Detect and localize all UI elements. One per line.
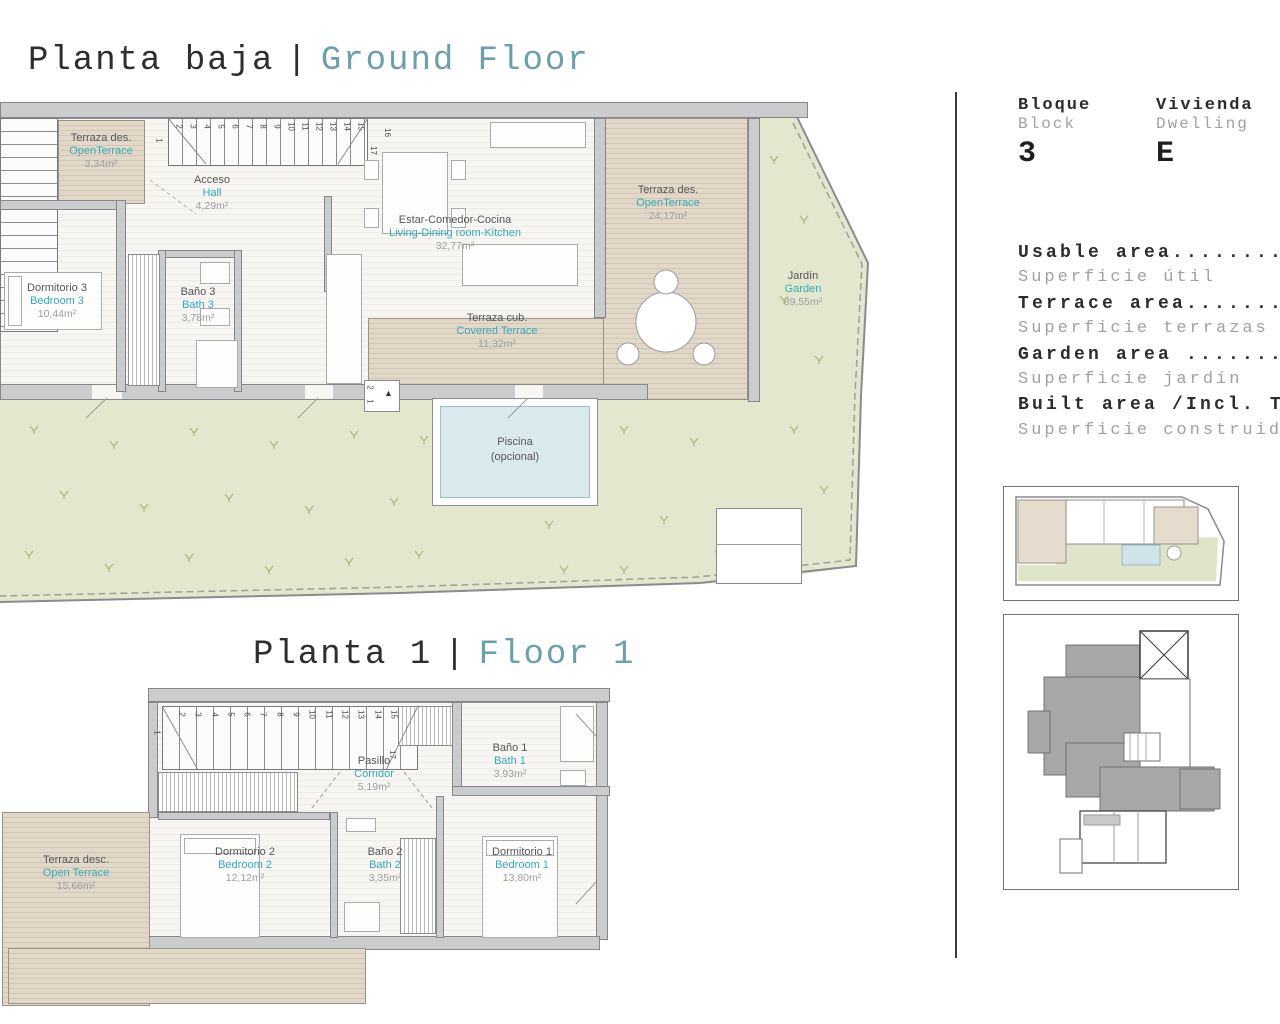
stair-number: 11	[324, 706, 333, 722]
stair-number: 13	[357, 706, 366, 722]
label-en: Covered Terrace	[456, 325, 537, 338]
label-es: Terraza des.	[69, 132, 133, 145]
label-es: Acceso	[194, 174, 230, 187]
label-es: Dormitorio 3	[27, 282, 87, 295]
room-label-bedroom2: Dormitorio 2 Bedroom 2 12,12m²	[215, 846, 275, 885]
toilet-bath1	[560, 770, 586, 786]
block-value: 3	[1018, 137, 1091, 171]
site-plan-mini	[1004, 487, 1236, 598]
wall-bedroom3-top	[0, 200, 126, 210]
label-area: 3,34m²	[69, 158, 133, 171]
stair-number: 8	[275, 706, 284, 722]
label-area: 13,80m²	[492, 872, 552, 885]
label-area: 24,17m²	[636, 210, 700, 223]
room-label-open-terrace: Terraza desc. Open Terrace 15,66m²	[43, 854, 109, 893]
exterior-wall-right	[748, 118, 760, 402]
label-es: Estar-Comedor-Cocina	[389, 214, 521, 227]
shower-bath2	[344, 902, 380, 932]
stair-number: 4	[210, 706, 219, 722]
stair-number: 10	[287, 120, 296, 134]
block-label-en: Block	[1018, 115, 1091, 133]
dwelling-value: E	[1156, 137, 1254, 171]
sink-bath2	[346, 818, 376, 832]
label-en: Open Terrace	[43, 867, 109, 880]
label-en: Bath 3	[181, 299, 216, 312]
area-summary-list: Usable area.................... Superfic…	[1018, 243, 1280, 446]
stair-number: 2	[175, 120, 184, 134]
area-line-usable-es: Superficie útil	[1018, 268, 1280, 293]
label-en: OpenTerrace	[636, 197, 700, 210]
wall-bedroom2-top	[158, 812, 330, 820]
wall-bedroom3-right	[116, 200, 126, 392]
label-en: Bedroom 1	[492, 859, 552, 872]
area-line-terrace-en: Terrace area...................	[1018, 294, 1280, 319]
label-es: Baño 1	[493, 742, 528, 755]
stair-number: 6	[231, 120, 240, 134]
room-label-garden: Jardín Garden 89,55m²	[784, 270, 823, 309]
area-line-usable-en: Usable area....................	[1018, 243, 1280, 268]
area-line-built-es: Superficie construida	[1018, 421, 1280, 446]
wall-bath1-left	[452, 702, 462, 792]
ground-floor-title-en: Ground Floor	[321, 42, 590, 80]
wardrobe	[158, 772, 298, 812]
label-area: 4,29m²	[194, 200, 230, 213]
wall-living-terrace	[594, 118, 606, 318]
label-en: Corridor	[354, 768, 394, 781]
key-plan-thumbnail	[1003, 614, 1239, 890]
label-area: 15,66m²	[43, 880, 109, 893]
dwelling-label-en: Dwelling	[1156, 115, 1254, 133]
stair-number: 7	[259, 706, 268, 722]
stair-number: 3	[194, 706, 203, 722]
label-en: Living-Dining room-Kitchen	[389, 227, 521, 240]
label-area: 12,12m²	[215, 872, 275, 885]
stair-number: 4	[203, 120, 212, 134]
step-number: 1	[366, 399, 375, 403]
area-line-garden-es: Superficie jardín	[1018, 370, 1280, 395]
area-line-built-en: Built area /Incl. Terr	[1018, 395, 1280, 420]
key-plan-mini	[1004, 615, 1236, 887]
label-en: Bedroom 3	[27, 295, 87, 308]
stair-number: 14	[373, 706, 382, 722]
label-en: Garden	[784, 283, 823, 296]
stair-number: 6	[243, 706, 252, 722]
block-info: Bloque Block 3	[1018, 96, 1091, 171]
kitchen-island	[326, 254, 362, 384]
laundry-closet	[398, 706, 456, 746]
pool: Piscina (opcional)	[432, 398, 598, 506]
shower	[196, 340, 238, 388]
room-label-living-room: Estar-Comedor-Cocina Living-Dining room-…	[389, 214, 521, 253]
stair-number: 9	[292, 706, 301, 722]
wall-bath1-bottom	[452, 786, 610, 796]
ground-floor-plan: 23456789101112131415 1 17 16 12345 2 1 ▲…	[0, 96, 876, 612]
label-es: Baño 3	[181, 286, 216, 299]
stair-number: 5	[227, 706, 236, 722]
label-en: OpenTerrace	[69, 145, 133, 158]
shower-bath1	[560, 706, 594, 762]
room-label-corridor: Pasillo Corridor 5,19m²	[354, 755, 394, 794]
label-area: 3,93m²	[493, 768, 528, 781]
label-es: Terraza des.	[636, 184, 700, 197]
step-number: 2	[366, 385, 375, 389]
lower-terrace	[8, 948, 366, 1004]
ground-floor-title: Planta baja|Ground Floor	[28, 42, 590, 80]
label-area: 32,77m²	[389, 240, 521, 253]
floor1-plan: 23456789101112131415 1 16 17 Terraza des…	[0, 686, 620, 1024]
room-label-small-terrace: Terraza des. OpenTerrace 3,34m²	[69, 132, 133, 171]
stair-number: 9	[273, 120, 282, 134]
garden-gate	[716, 508, 802, 584]
exterior-wall-top	[0, 102, 808, 118]
label-en: Hall	[194, 187, 230, 200]
pool-label: Piscina (opcional)	[433, 435, 597, 465]
ground-floor-title-es: Planta baja	[28, 42, 274, 80]
label-es: Dormitorio 1	[492, 846, 552, 859]
exterior-wall-top	[148, 688, 610, 702]
dwelling-label-es: Vivienda	[1156, 96, 1254, 115]
stair-number: 15	[357, 120, 366, 134]
pillow	[8, 276, 22, 326]
stair-number: 2	[178, 706, 187, 722]
wall-bath2-bedroom1	[436, 796, 444, 938]
stair-number: 10	[308, 706, 317, 722]
site-plan-thumbnail	[1003, 486, 1239, 601]
kitchen-counter	[490, 122, 586, 148]
title-separator: |	[432, 636, 478, 674]
room-label-open-terrace: Terraza des. OpenTerrace 24,17m²	[636, 184, 700, 223]
block-label-es: Bloque	[1018, 96, 1091, 115]
stair-numbers: 23456789101112131415	[172, 122, 368, 131]
room-label-hall: Acceso Hall 4,29m²	[194, 174, 230, 213]
label-area: 11,32m²	[456, 338, 537, 351]
stair-number: 14	[343, 120, 352, 134]
toilet	[200, 262, 230, 284]
label-area: 89,55m²	[784, 296, 823, 309]
pool-label-line2: (opcional)	[433, 450, 597, 465]
wall-bath3-top	[158, 250, 242, 258]
room-label-bedroom1: Dormitorio 1 Bedroom 1 13,80m²	[492, 846, 552, 885]
area-line-terrace-es: Superficie terrazas	[1018, 319, 1280, 344]
wardrobe	[128, 254, 160, 386]
floor1-title-es: Planta 1	[253, 636, 432, 674]
pool-label-line1: Piscina	[433, 435, 597, 450]
stair-numbers: 23456789101112131415	[174, 710, 402, 719]
label-en: Bedroom 2	[215, 859, 275, 872]
direction-arrow-icon: ▲	[384, 388, 393, 398]
door-opening	[305, 385, 333, 399]
stair-number: 13	[329, 120, 338, 134]
stair-number: 3	[189, 120, 198, 134]
stair-number-16: 16	[383, 128, 392, 137]
area-line-garden-en: Garden area ...................	[1018, 345, 1280, 370]
open-terrace	[600, 118, 748, 400]
stair-number-17: 17	[369, 146, 378, 155]
dwelling-info: Vivienda Dwelling E	[1156, 96, 1254, 171]
stair-number: 7	[245, 120, 254, 134]
page: { "titles": { "ground": {"es": "Planta b…	[0, 0, 1280, 1024]
label-es: Terraza desc.	[43, 854, 109, 867]
floor1-title: Planta 1|Floor 1	[253, 636, 635, 674]
stair-number: 5	[217, 120, 226, 134]
room-label-covered-terrace: Terraza cub. Covered Terrace 11,32m²	[456, 312, 537, 351]
label-area: 3,35m²	[368, 872, 403, 885]
gate-line	[716, 544, 802, 545]
room-label-bedroom3: Dormitorio 3 Bedroom 3 10,44m²	[27, 282, 87, 321]
room-label-bath1: Baño 1 Bath 1 3,93m²	[493, 742, 528, 781]
room-label-bath3: Baño 3 Bath 3 3,78m²	[181, 286, 216, 325]
door-opening	[515, 385, 543, 399]
stair-number-first: 1	[155, 138, 164, 142]
label-en: Bath 2	[368, 859, 403, 872]
label-es: Baño 2	[368, 846, 403, 859]
stair-number: 12	[341, 706, 350, 722]
chair	[364, 160, 379, 180]
title-separator: |	[274, 42, 320, 80]
label-es: Terraza cub.	[456, 312, 537, 325]
chair	[364, 208, 379, 228]
stair-number: 11	[301, 120, 310, 134]
exterior-wall-left	[148, 702, 158, 818]
floor1-title-en: Floor 1	[479, 636, 636, 674]
label-area: 10,44m²	[27, 308, 87, 321]
chair	[451, 160, 466, 180]
label-es: Jardín	[784, 270, 823, 283]
stair-number-first: 1	[153, 730, 162, 734]
panel-divider-line	[955, 92, 957, 958]
label-area: 5,19m²	[354, 781, 394, 794]
label-area: 3,78m²	[181, 312, 216, 325]
room-label-bath2: Baño 2 Bath 2 3,35m²	[368, 846, 403, 885]
label-es: Pasillo	[354, 755, 394, 768]
stair-number: 12	[315, 120, 324, 134]
exterior-wall-right	[596, 702, 608, 940]
label-es: Dormitorio 2	[215, 846, 275, 859]
wardrobe	[400, 838, 436, 934]
stair-number: 8	[259, 120, 268, 134]
wall-bedroom2-bath2	[330, 812, 338, 938]
label-en: Bath 1	[493, 755, 528, 768]
